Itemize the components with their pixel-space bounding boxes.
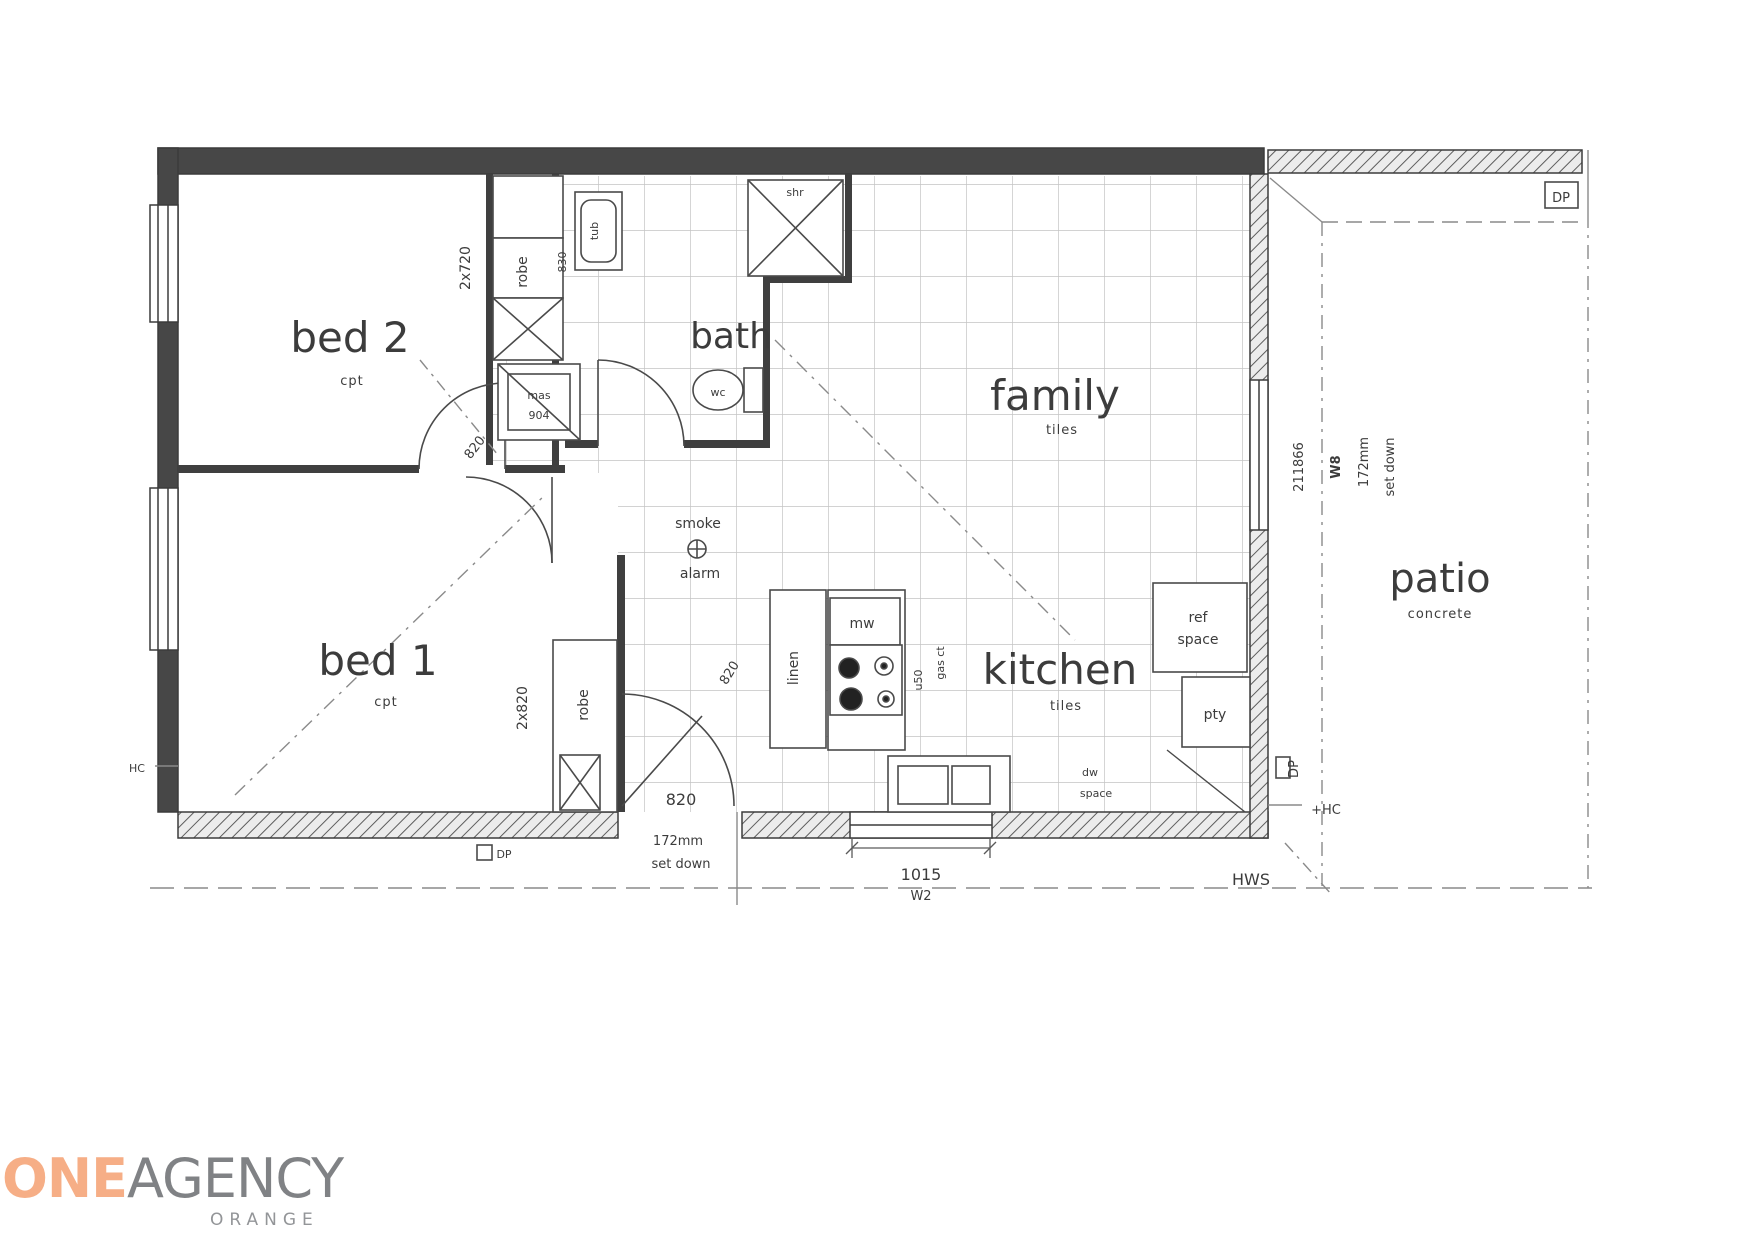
label-fridge-1: ref [1189, 610, 1209, 626]
label-robe-bed1: robe [576, 689, 592, 721]
floor-plan-page: bed 2 cpt bed 1 cpt bath family tiles ki… [0, 0, 1754, 1240]
agency-logo: ONEAGENCY ORANGE [2, 1152, 422, 1230]
dp-box-bottom-left [477, 845, 492, 860]
room-label-kitchen: kitchen [983, 645, 1138, 694]
cooktop [830, 645, 902, 715]
label-robe-bed1-size: 2x820 [515, 686, 531, 730]
wall-bed1-right [617, 555, 625, 812]
wall-top [158, 148, 1264, 174]
kitchen-sink [888, 756, 1010, 812]
label-linen: linen [786, 651, 802, 685]
label-shower: shr [786, 186, 804, 199]
label-w2-size: 1015 [901, 865, 942, 884]
room-sub-family: tiles [1046, 423, 1078, 438]
label-entry-setdown-1: 172mm [653, 834, 703, 849]
label-entry-setdown-2: set down [651, 857, 710, 872]
label-dp-bottom-left: DP [496, 848, 511, 861]
logo-agency: AGENCY [127, 1147, 343, 1210]
room-label-bath: bath [690, 316, 772, 357]
label-cooktop-1: u50 [912, 670, 925, 691]
wall-bath-step [763, 276, 852, 283]
label-wc: wc [710, 386, 725, 399]
label-robe-bed2: robe [515, 256, 531, 288]
window-w2 [850, 812, 992, 838]
logo-one: ONE [2, 1147, 127, 1210]
label-tub: tub [588, 222, 601, 240]
label-vanity-2: 904 [529, 409, 550, 422]
window-bed1 [150, 488, 178, 650]
wall-bottom-left [178, 812, 618, 838]
toilet [693, 368, 763, 412]
label-patio-setdown-1: 172mm [1357, 437, 1372, 487]
room-sub-patio: concrete [1408, 607, 1473, 622]
label-microwave: mw [849, 616, 874, 632]
room-label-bed1: bed 1 [318, 636, 437, 685]
label-patio-setdown-2: set down [1383, 437, 1398, 496]
robe-bed1 [553, 640, 617, 812]
wall-bath-right-lower [763, 276, 770, 448]
smoke-alarm-icon [688, 540, 706, 558]
label-fridge-2: space [1177, 632, 1218, 648]
room-label-bed2: bed 2 [290, 313, 409, 362]
wall-bath-bottom-b [684, 440, 770, 448]
patio-roof-corner [1270, 178, 1322, 222]
label-smoke-1: smoke [675, 516, 721, 532]
floor-plan-drawing: bed 2 cpt bed 1 cpt bath family tiles ki… [0, 0, 1754, 1240]
label-w2: W2 [910, 889, 931, 904]
wall-bottom-right [742, 812, 1268, 838]
label-hc-left: HC [129, 762, 145, 775]
room-label-patio: patio [1389, 556, 1490, 602]
window-family-right [1250, 380, 1268, 530]
logo-suburb: ORANGE [210, 1210, 422, 1230]
label-pantry: pty [1204, 707, 1227, 723]
label-dp-top-right: DP [1552, 191, 1570, 206]
room-sub-bed1: cpt [374, 695, 398, 710]
label-entry-door: 820 [666, 790, 697, 809]
label-dp-right: DP [1287, 760, 1302, 778]
label-tub-size: 830 [556, 252, 569, 273]
wall-bed2-right [486, 174, 493, 465]
wall-bath-right-upper [845, 174, 852, 283]
dimension-w2 [846, 838, 996, 858]
room-sub-kitchen: tiles [1050, 699, 1082, 714]
label-hws: HWS [1232, 870, 1270, 889]
wall-bath-bottom-a [565, 440, 598, 448]
room-sub-bed2: cpt [340, 374, 364, 389]
room-label-family: family [990, 371, 1120, 420]
label-dishwasher-1: dw [1082, 766, 1098, 779]
window-bed2 [150, 205, 178, 322]
label-smoke-2: alarm [680, 566, 720, 582]
hws-leader [1285, 843, 1332, 895]
label-robe-bed2-size: 2x720 [458, 246, 474, 290]
label-vanity-1: mas [527, 389, 550, 402]
wall-patio-top [1268, 150, 1582, 173]
hall-cupboard [498, 364, 580, 440]
label-w8: W8 [1329, 455, 1344, 478]
label-cooktop-2: gas ct [934, 646, 947, 680]
label-dishwasher-2: space [1080, 787, 1113, 800]
wall-bed-divider [178, 465, 419, 473]
label-patio-length: 211866 [1292, 442, 1307, 492]
fridge-space [1153, 583, 1247, 672]
label-hc: +HC [1311, 803, 1341, 818]
